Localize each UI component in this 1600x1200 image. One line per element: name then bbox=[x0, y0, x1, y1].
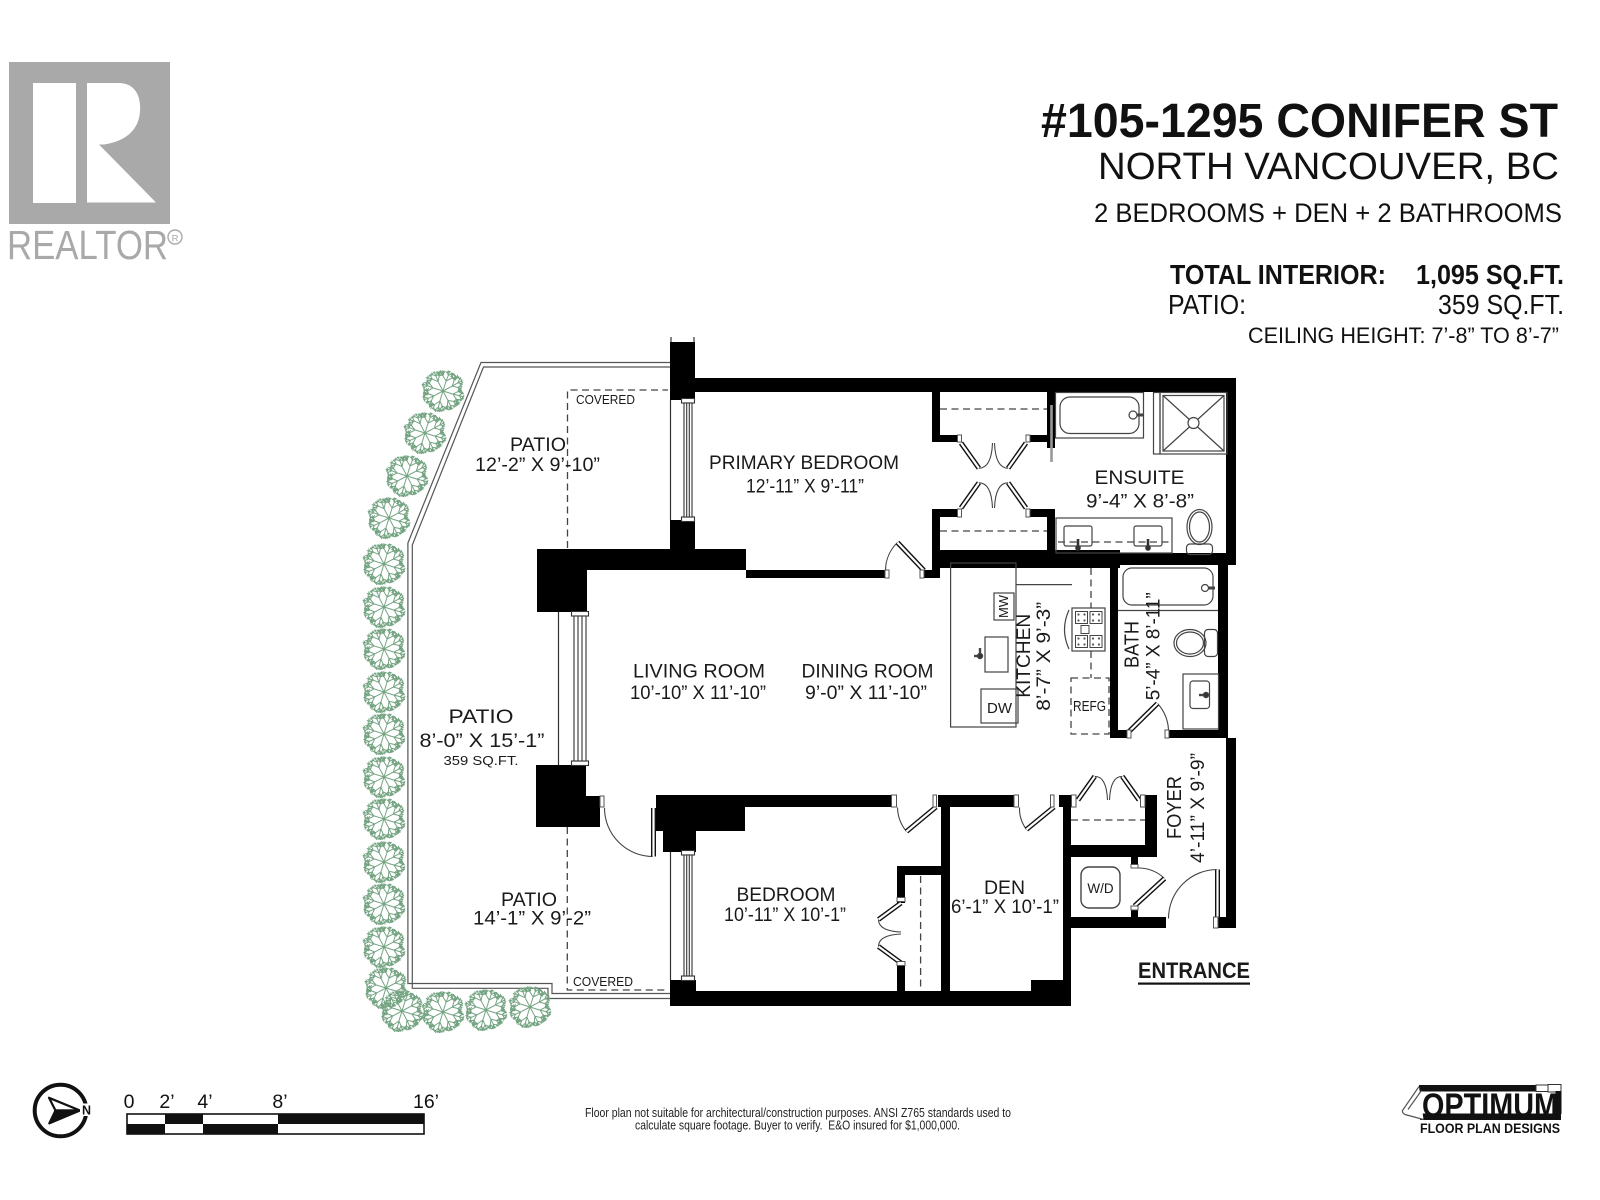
svg-text:PATIO: PATIO bbox=[510, 435, 566, 456]
svg-text:5’-4” X 8’-11”: 5’-4” X 8’-11” bbox=[1144, 592, 1165, 700]
svg-text:COVERED: COVERED bbox=[573, 975, 633, 989]
svg-text:#105-1295 CONIFER ST: #105-1295 CONIFER ST bbox=[1041, 95, 1558, 148]
svg-text:BEDROOM: BEDROOM bbox=[737, 885, 836, 906]
svg-text:1,095 SQ.FT.: 1,095 SQ.FT. bbox=[1416, 259, 1564, 290]
svg-text:LIVING ROOM: LIVING ROOM bbox=[633, 662, 765, 683]
svg-text:2 BEDROOMS + DEN + 2 BATHROOMS: 2 BEDROOMS + DEN + 2 BATHROOMS bbox=[1094, 198, 1562, 228]
svg-text:16’: 16’ bbox=[413, 1091, 439, 1113]
svg-text:MW: MW bbox=[996, 594, 1011, 618]
svg-text:W/D: W/D bbox=[1087, 881, 1113, 896]
svg-text:R: R bbox=[172, 234, 179, 245]
svg-text:calculate square footage. Buye: calculate square footage. Buyer to verif… bbox=[635, 1118, 960, 1133]
svg-text:BATH: BATH bbox=[1122, 621, 1144, 668]
svg-text:10’-10” X 11’-10”: 10’-10” X 11’-10” bbox=[630, 683, 766, 704]
svg-text:PATIO:: PATIO: bbox=[1168, 289, 1246, 320]
svg-text:TOTAL INTERIOR:: TOTAL INTERIOR: bbox=[1170, 259, 1386, 290]
svg-text:REALTOR: REALTOR bbox=[7, 222, 168, 268]
svg-text:10’-11” X 10’-1”: 10’-11” X 10’-1” bbox=[724, 905, 846, 926]
svg-text:6’-1” X 10’-1”: 6’-1” X 10’-1” bbox=[951, 897, 1059, 918]
svg-text:4’: 4’ bbox=[197, 1091, 212, 1113]
svg-text:0: 0 bbox=[124, 1091, 135, 1113]
svg-text:NORTH VANCOUVER, BC: NORTH VANCOUVER, BC bbox=[1098, 146, 1559, 188]
svg-text:8’: 8’ bbox=[272, 1091, 287, 1113]
svg-text:N: N bbox=[82, 1104, 91, 1118]
svg-text:ENSUITE: ENSUITE bbox=[1095, 468, 1185, 489]
svg-text:DEN: DEN bbox=[984, 878, 1025, 899]
svg-text:9’-0” X 11’-10”: 9’-0” X 11’-10” bbox=[805, 683, 927, 704]
svg-text:COVERED: COVERED bbox=[576, 393, 635, 407]
svg-text:REFG: REFG bbox=[1073, 698, 1106, 715]
svg-text:9’-4” X 8’-8”: 9’-4” X 8’-8” bbox=[1086, 492, 1194, 513]
svg-text:DINING ROOM: DINING ROOM bbox=[802, 662, 934, 683]
svg-text:14’-1” X 9’-2”: 14’-1” X 9’-2” bbox=[473, 909, 591, 930]
svg-text:PRIMARY BEDROOM: PRIMARY BEDROOM bbox=[709, 453, 899, 474]
svg-text:4’-11” X 9’-9”: 4’-11” X 9’-9” bbox=[1188, 753, 1209, 863]
svg-text:12’-2” X 9’-10”: 12’-2” X 9’-10” bbox=[475, 455, 600, 476]
svg-text:8’-0” X 15’-1”: 8’-0” X 15’-1” bbox=[420, 731, 545, 752]
svg-text:2’: 2’ bbox=[159, 1091, 174, 1113]
svg-text:359 SQ.FT.: 359 SQ.FT. bbox=[444, 754, 519, 768]
svg-text:DW: DW bbox=[987, 700, 1013, 717]
svg-text:ENTRANCE: ENTRANCE bbox=[1138, 958, 1250, 983]
svg-text:PATIO: PATIO bbox=[449, 707, 514, 728]
svg-text:359 SQ.FT.: 359 SQ.FT. bbox=[1438, 289, 1564, 320]
svg-text:FLOOR PLAN DESIGNS: FLOOR PLAN DESIGNS bbox=[1420, 1121, 1560, 1136]
svg-text:8’-7” X 9’-3”: 8’-7” X 9’-3” bbox=[1034, 602, 1055, 711]
svg-text:KITCHEN: KITCHEN bbox=[1013, 614, 1035, 698]
svg-text:FOYER: FOYER bbox=[1164, 776, 1186, 839]
svg-text:OPTIMUM: OPTIMUM bbox=[1422, 1087, 1558, 1125]
svg-text:CEILING HEIGHT: 7’-8” TO 8’-7”: CEILING HEIGHT: 7’-8” TO 8’-7” bbox=[1248, 323, 1559, 348]
svg-text:12’-11” X 9’-11”: 12’-11” X 9’-11” bbox=[746, 477, 864, 498]
